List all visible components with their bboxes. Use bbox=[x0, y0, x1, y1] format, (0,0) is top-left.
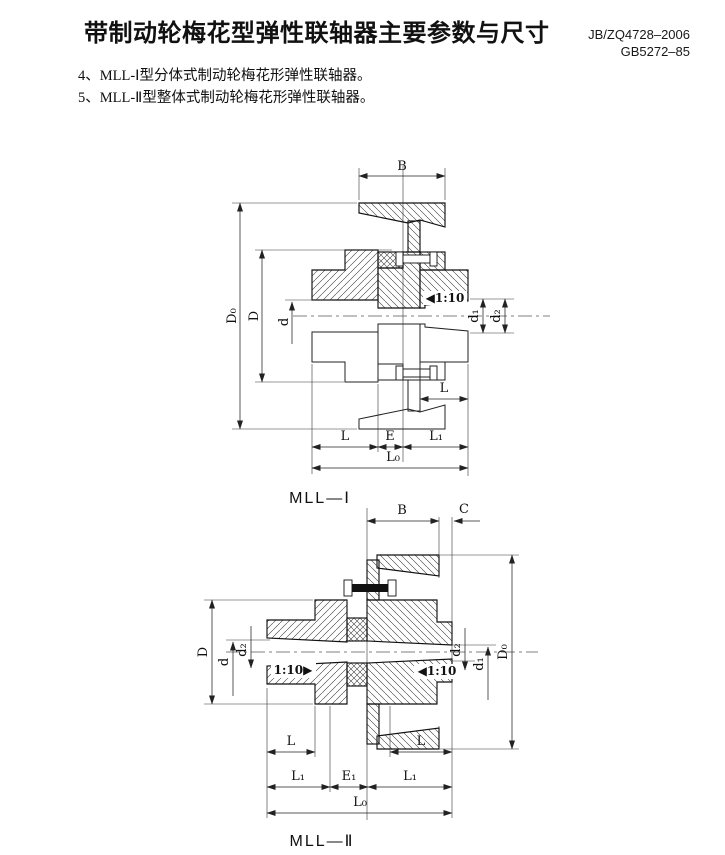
mll1-outline-bottom bbox=[312, 324, 468, 429]
drawing-mll-1: B D₀ D d ◀1:10 d₁ d₂ bbox=[225, 159, 550, 507]
dim-label-l1-right-2: L₁ bbox=[403, 769, 417, 784]
drawing-mll-2: B C D₀ D d d₂ 1:10▶ ◀1:10 bbox=[196, 502, 538, 850]
dim-label-d1-1: d₁ bbox=[467, 309, 482, 323]
dim-label-c2: C bbox=[459, 502, 469, 517]
dim-label-dcap-2: D bbox=[196, 647, 211, 657]
dim-label-dsmall-1: d bbox=[277, 318, 292, 326]
dim-label-b1: B bbox=[397, 159, 407, 174]
dim-label-e1-2: E₁ bbox=[342, 769, 357, 784]
dim-label-d0-1: D₀ bbox=[225, 308, 240, 324]
dim-label-d2-right: d₂ bbox=[449, 643, 464, 657]
taper-label-right-2: ◀1:10 bbox=[418, 664, 457, 678]
document-page: 带制动轮梅花型弹性联轴器主要参数与尺寸 JB/ZQ4728–2006 GB527… bbox=[0, 0, 725, 855]
dim-label-dcap-1: D bbox=[247, 311, 262, 321]
dim-label-l0-1: L₀ bbox=[386, 450, 400, 465]
dim-label-l-1: L bbox=[341, 429, 350, 444]
dim-label-b2: B bbox=[397, 503, 407, 518]
dim-label-l1-1: L₁ bbox=[429, 429, 443, 444]
dim-label-d0-2: D₀ bbox=[496, 644, 511, 660]
dim-label-d1-2: d₁ bbox=[472, 657, 487, 671]
caption-mll-2: MLL—Ⅱ bbox=[290, 833, 355, 850]
dim-label-d2-left: d₂ bbox=[235, 643, 250, 657]
dim-label-l-right-1: L bbox=[440, 381, 449, 396]
dim-label-l0-2: L₀ bbox=[353, 795, 367, 810]
taper-label-left-2: 1:10▶ bbox=[274, 663, 313, 677]
dim-label-l-left-2: L bbox=[287, 734, 296, 749]
dim-label-dsmall-2: d bbox=[217, 658, 232, 666]
dim-label-e-1: E bbox=[385, 429, 395, 444]
technical-drawings: B D₀ D d ◀1:10 d₁ d₂ bbox=[0, 0, 725, 855]
dim-label-l1-left-2: L₁ bbox=[291, 769, 305, 784]
dim-label-d2-1: d₂ bbox=[489, 309, 504, 323]
dim-label-l-right-2: L bbox=[417, 734, 426, 749]
mll2-dimensions: B C D₀ D d d₂ 1:10▶ ◀1:10 bbox=[196, 502, 519, 818]
caption-mll-1: MLL—Ⅰ bbox=[289, 490, 351, 507]
taper-label-1: ◀1:10 bbox=[426, 291, 465, 305]
